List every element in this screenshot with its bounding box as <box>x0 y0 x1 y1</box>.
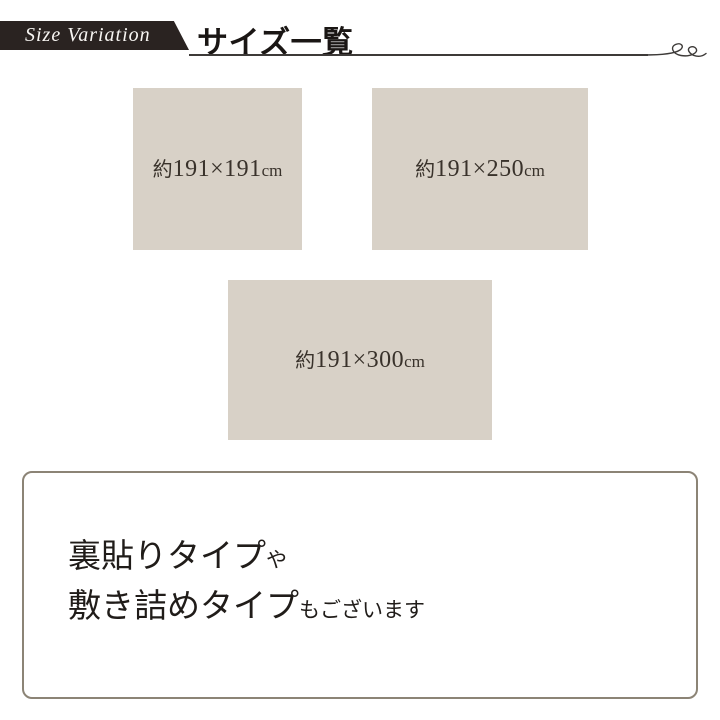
size-dimensions: 191×191 <box>173 156 262 182</box>
note-line1-main: 裏貼りタイプ <box>68 539 266 575</box>
size-approx: 約 <box>153 159 173 181</box>
size-unit: cm <box>524 161 545 180</box>
size-unit: cm <box>262 161 283 180</box>
size-dimensions: 191×300 <box>315 347 404 373</box>
size-label: 約191×250cm <box>415 157 545 181</box>
ribbon-label: Size Variation <box>0 24 151 47</box>
size-label: 約191×191cm <box>153 157 283 181</box>
size-swatch-191x191: 約191×191cm <box>133 88 302 250</box>
note-line2-small: もございます <box>299 598 425 622</box>
size-swatch-191x300: 約191×300cm <box>228 280 492 440</box>
note-box: 裏貼りタイプや 敷き詰めタイプもございます <box>22 471 698 699</box>
size-approx: 約 <box>295 350 315 372</box>
note-line-2: 敷き詰めタイプもございます <box>68 585 425 635</box>
size-dimensions: 191×250 <box>435 156 524 182</box>
section-ribbon: Size Variation <box>0 21 189 50</box>
note-text: 裏貼りタイプや 敷き詰めタイプもございます <box>68 535 425 635</box>
size-approx: 約 <box>415 159 435 181</box>
note-line2-main: 敷き詰めタイプ <box>68 589 299 625</box>
size-unit: cm <box>404 352 425 371</box>
size-label: 約191×300cm <box>295 348 425 372</box>
flourish-ornament <box>644 40 708 68</box>
note-line1-small: や <box>266 548 287 572</box>
header-rule <box>189 54 648 56</box>
size-variation-page: Size Variation サイズ一覧 約191×191cm 約191×250… <box>0 0 720 720</box>
size-swatch-191x250: 約191×250cm <box>372 88 588 250</box>
note-line-1: 裏貼りタイプや <box>68 535 425 585</box>
